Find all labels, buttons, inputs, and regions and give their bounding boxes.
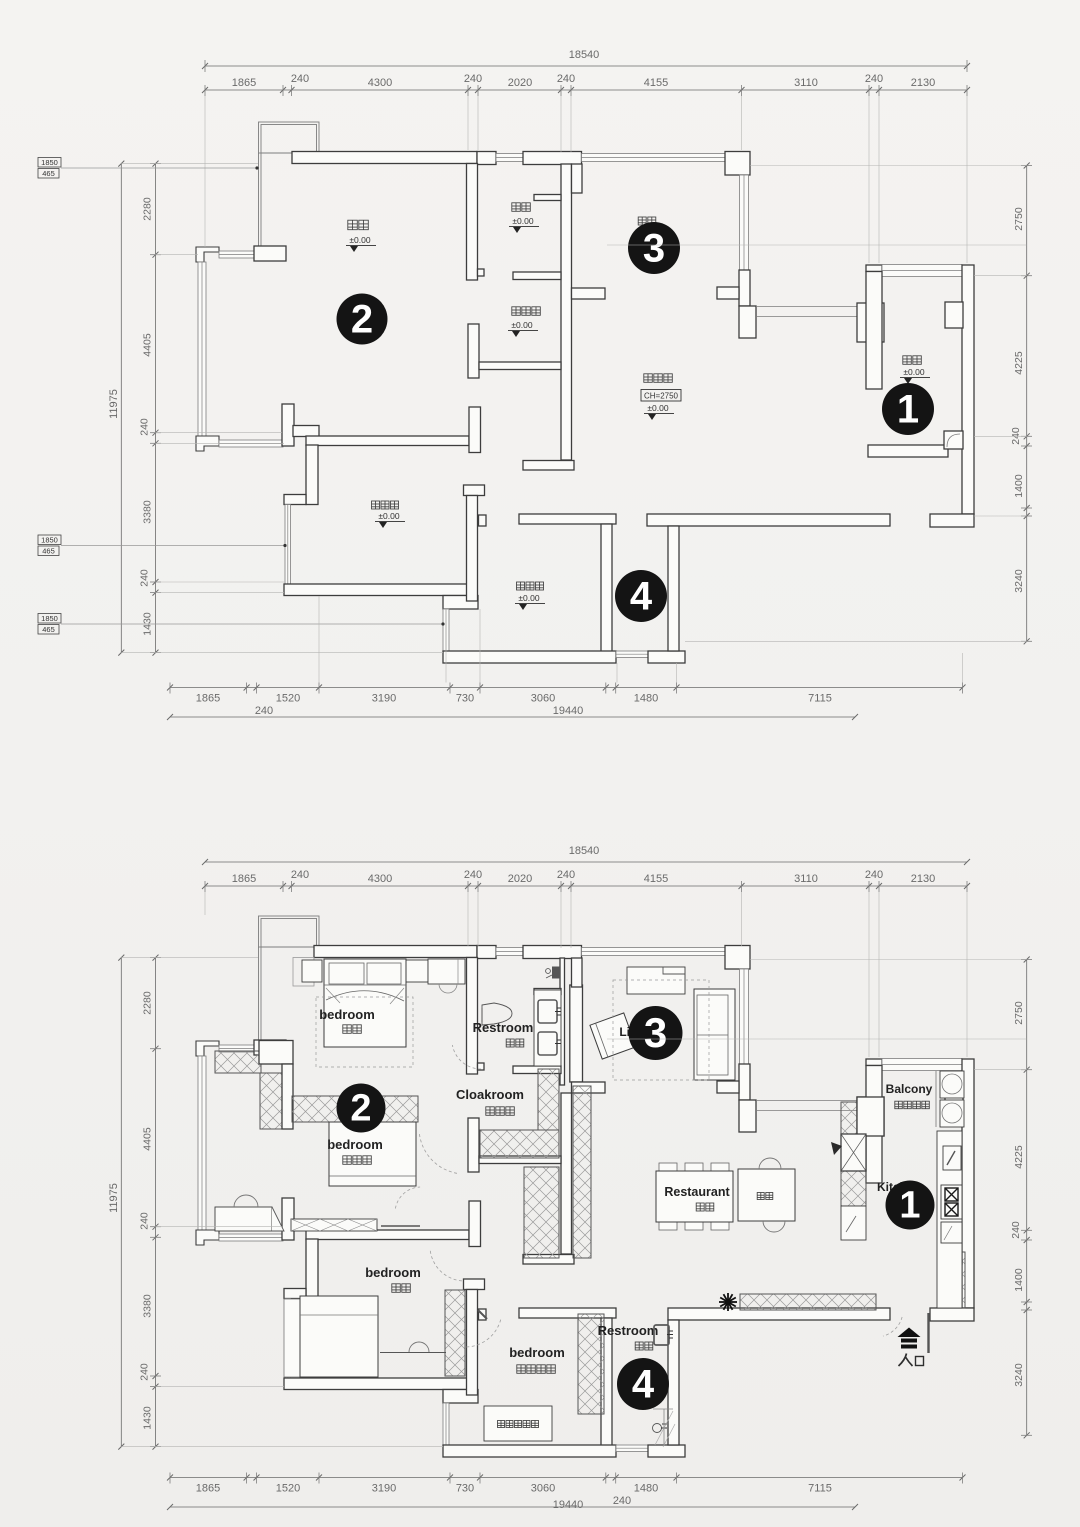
svg-text:11975: 11975 <box>108 389 120 419</box>
svg-text:1: 1 <box>899 1185 920 1227</box>
svg-text:3060: 3060 <box>531 693 555 705</box>
svg-text:4225: 4225 <box>1013 1145 1025 1169</box>
svg-text:4405: 4405 <box>142 333 154 357</box>
svg-text:Balcony: Balcony <box>886 1082 933 1096</box>
svg-text:3: 3 <box>643 227 665 271</box>
svg-text:1865: 1865 <box>196 693 220 705</box>
svg-text:2: 2 <box>351 297 373 341</box>
svg-text:240: 240 <box>613 1495 631 1507</box>
svg-text:465: 465 <box>42 625 55 634</box>
svg-text:240: 240 <box>139 569 151 587</box>
svg-text:4: 4 <box>632 1363 655 1407</box>
svg-text:±0.00: ±0.00 <box>903 367 924 377</box>
svg-text:Restroom: Restroom <box>473 1020 534 1035</box>
svg-text:3190: 3190 <box>372 693 396 705</box>
svg-text:18540: 18540 <box>569 49 600 61</box>
svg-text:2280: 2280 <box>142 991 154 1015</box>
svg-text:1400: 1400 <box>1013 474 1025 498</box>
svg-text:1400: 1400 <box>1013 1268 1025 1292</box>
svg-text:Restaurant: Restaurant <box>664 1185 730 1199</box>
svg-text:3380: 3380 <box>142 500 154 524</box>
svg-text:bedroom: bedroom <box>365 1265 421 1280</box>
svg-text:4225: 4225 <box>1013 351 1025 375</box>
svg-text:240: 240 <box>1010 427 1022 445</box>
svg-text:240: 240 <box>291 869 309 881</box>
svg-text:1850: 1850 <box>41 158 58 167</box>
svg-text:3110: 3110 <box>794 77 818 89</box>
svg-text:bedroom: bedroom <box>319 1007 375 1022</box>
svg-text:1480: 1480 <box>634 1483 658 1495</box>
svg-text:240: 240 <box>139 418 151 436</box>
svg-text:1430: 1430 <box>142 1406 154 1430</box>
svg-text:1520: 1520 <box>276 1483 300 1495</box>
svg-text:2130: 2130 <box>911 873 935 885</box>
svg-text:±0.00: ±0.00 <box>512 216 533 226</box>
svg-text:2130: 2130 <box>911 77 935 89</box>
svg-text:2020: 2020 <box>508 77 532 89</box>
svg-text:Restroom: Restroom <box>598 1323 659 1338</box>
svg-text:730: 730 <box>456 693 474 705</box>
svg-text:240: 240 <box>557 869 575 881</box>
svg-text:±0.00: ±0.00 <box>378 511 399 521</box>
svg-text:2020: 2020 <box>508 873 532 885</box>
svg-text:465: 465 <box>42 169 55 178</box>
svg-text:±0.00: ±0.00 <box>647 403 668 413</box>
svg-text:240: 240 <box>865 73 883 85</box>
svg-text:7115: 7115 <box>808 693 832 705</box>
svg-text:bedroom: bedroom <box>509 1345 565 1360</box>
svg-text:1865: 1865 <box>232 77 256 89</box>
svg-text:3190: 3190 <box>372 1483 396 1495</box>
svg-text:±0.00: ±0.00 <box>349 235 370 245</box>
svg-text:1520: 1520 <box>276 693 300 705</box>
svg-text:1850: 1850 <box>41 536 58 545</box>
svg-text:3060: 3060 <box>531 1483 555 1495</box>
svg-text:19440: 19440 <box>553 1499 584 1511</box>
svg-text:Cloakroom: Cloakroom <box>456 1087 524 1102</box>
svg-text:2: 2 <box>350 1088 371 1130</box>
svg-text:4155: 4155 <box>644 77 668 89</box>
svg-text:240: 240 <box>291 73 309 85</box>
svg-text:2280: 2280 <box>142 197 154 221</box>
svg-text:1: 1 <box>897 388 919 432</box>
svg-text:11975: 11975 <box>108 1183 120 1213</box>
svg-text:240: 240 <box>557 73 575 85</box>
svg-text:4: 4 <box>630 575 653 619</box>
svg-text:7115: 7115 <box>808 1483 832 1495</box>
svg-text:240: 240 <box>865 869 883 881</box>
svg-text:1480: 1480 <box>634 693 658 705</box>
svg-text:4300: 4300 <box>368 873 392 885</box>
svg-text:240: 240 <box>255 705 273 717</box>
svg-text:465: 465 <box>42 547 55 556</box>
svg-text:bedroom: bedroom <box>327 1137 383 1152</box>
svg-text:240: 240 <box>1010 1221 1022 1239</box>
svg-text:3380: 3380 <box>142 1294 154 1318</box>
svg-text:3240: 3240 <box>1013 569 1025 593</box>
svg-text:240: 240 <box>139 1363 151 1381</box>
svg-text:730: 730 <box>456 1483 474 1495</box>
svg-text:±0.00: ±0.00 <box>518 593 539 603</box>
svg-text:240: 240 <box>139 1212 151 1230</box>
svg-text:1865: 1865 <box>196 1483 220 1495</box>
svg-text:240: 240 <box>464 73 482 85</box>
svg-text:±0.00: ±0.00 <box>511 320 532 330</box>
svg-text:4405: 4405 <box>142 1127 154 1151</box>
svg-text:4300: 4300 <box>368 77 392 89</box>
svg-text:1850: 1850 <box>41 614 58 623</box>
svg-text:2750: 2750 <box>1013 207 1025 231</box>
svg-text:3240: 3240 <box>1013 1363 1025 1387</box>
svg-text:1865: 1865 <box>232 873 256 885</box>
svg-text:18540: 18540 <box>569 845 600 857</box>
svg-text:2750: 2750 <box>1013 1001 1025 1025</box>
svg-text:19440: 19440 <box>553 705 584 717</box>
svg-text:4155: 4155 <box>644 873 668 885</box>
svg-text:240: 240 <box>464 869 482 881</box>
svg-text:CH=2750: CH=2750 <box>644 392 679 401</box>
svg-text:3: 3 <box>644 1009 667 1056</box>
svg-text:3110: 3110 <box>794 873 818 885</box>
